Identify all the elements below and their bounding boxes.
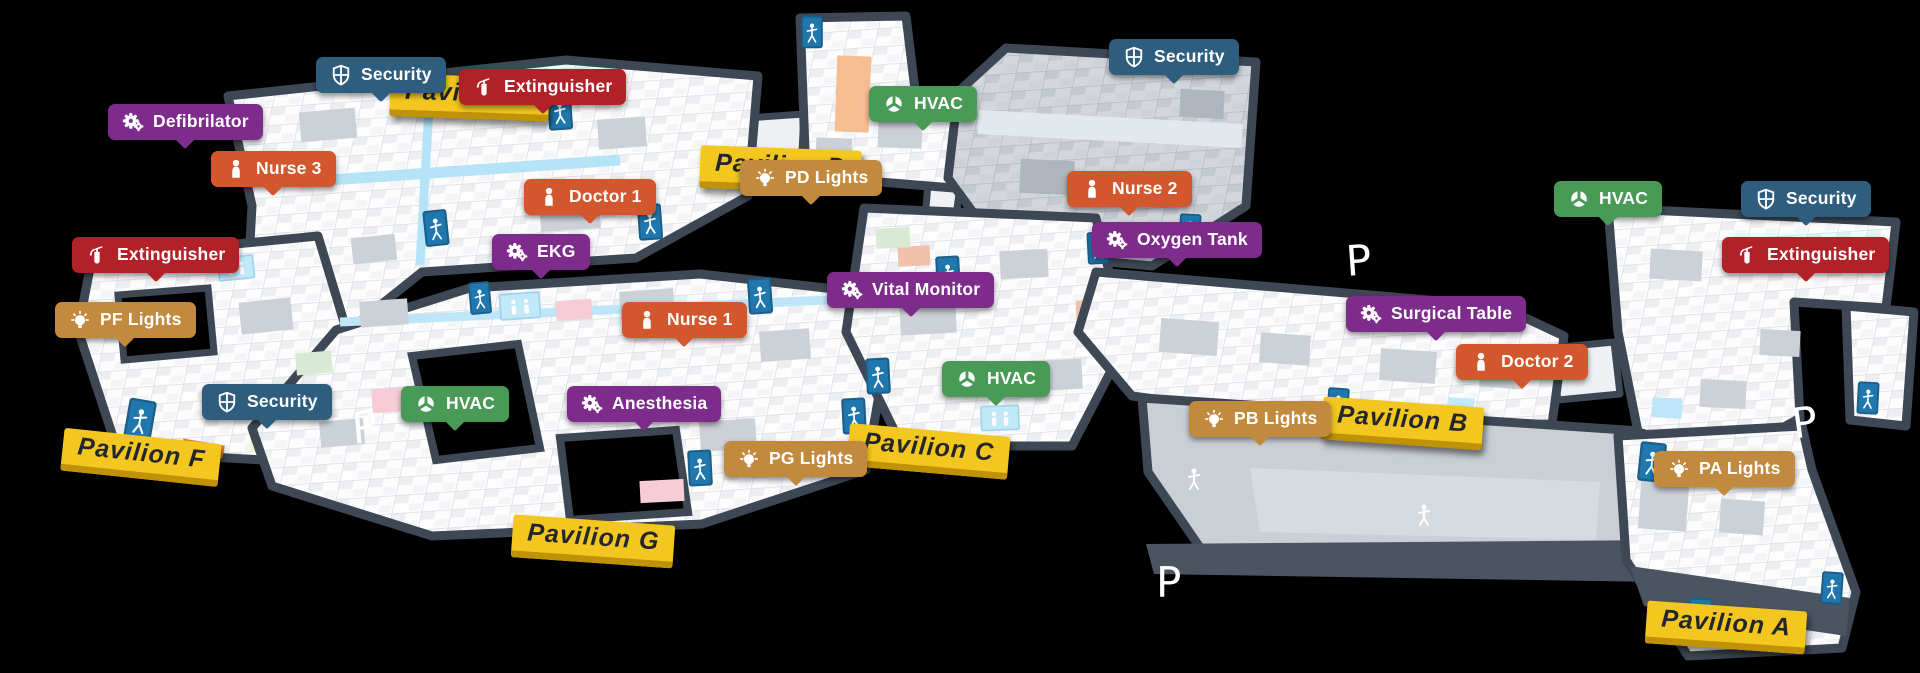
fan-icon — [1568, 188, 1590, 210]
fan-icon — [415, 393, 437, 415]
marker-doctor-2[interactable]: Doctor 2 — [1456, 344, 1588, 380]
banner-label: Pavilion A — [1660, 605, 1792, 642]
person-icon — [538, 186, 560, 208]
marker-nurse-3[interactable]: Nurse 3 — [211, 151, 336, 187]
marker-label: Extinguisher — [504, 78, 612, 96]
marker-pa-lights[interactable]: PA Lights — [1654, 451, 1795, 487]
marker-label: Security — [247, 393, 318, 411]
shield-icon — [1755, 188, 1777, 210]
marker-label: PB Lights — [1234, 410, 1317, 428]
fire-extinguisher-icon — [1736, 244, 1758, 266]
lightbulb-icon — [69, 309, 91, 331]
marker-defibrilator[interactable]: Defibrilator — [108, 104, 263, 140]
marker-oxygen-tank[interactable]: Oxygen Tank — [1092, 222, 1262, 258]
marker-pd-lights[interactable]: PD Lights — [740, 160, 882, 196]
marker-label: HVAC — [914, 95, 963, 113]
person-icon — [1081, 178, 1103, 200]
gears-icon — [122, 111, 144, 133]
marker-nurse-2[interactable]: Nurse 2 — [1067, 171, 1192, 207]
marker-pf-lights[interactable]: PF Lights — [55, 302, 196, 338]
marker-label: HVAC — [1599, 190, 1648, 208]
shield-icon — [216, 391, 238, 413]
marker-label: Security — [361, 66, 432, 84]
marker-hvac-pavilion-g[interactable]: HVAC — [401, 386, 509, 422]
marker-doctor-1[interactable]: Doctor 1 — [524, 179, 656, 215]
gears-icon — [1360, 303, 1382, 325]
marker-label: Nurse 1 — [667, 311, 733, 329]
fan-icon — [883, 93, 905, 115]
lightbulb-icon — [1203, 408, 1225, 430]
lightbulb-icon — [1668, 458, 1690, 480]
marker-security-top-center[interactable]: Security — [1109, 39, 1239, 75]
shield-icon — [1123, 46, 1145, 68]
marker-label: Surgical Table — [1391, 305, 1512, 323]
fire-extinguisher-icon — [86, 244, 108, 266]
gears-icon — [506, 241, 528, 263]
marker-security-pavilion-e[interactable]: Security — [316, 57, 446, 93]
marker-ekg[interactable]: EKG — [492, 234, 590, 270]
marker-surgical-table[interactable]: Surgical Table — [1346, 296, 1526, 332]
marker-label: PD Lights — [785, 169, 868, 187]
gears-icon — [581, 393, 603, 415]
marker-extinguisher-right[interactable]: Extinguisher — [1722, 237, 1889, 273]
banner-label: Pavilion B — [1336, 400, 1469, 437]
marker-label: PA Lights — [1699, 460, 1781, 478]
gears-icon — [841, 279, 863, 301]
fan-icon — [956, 368, 978, 390]
marker-hvac-pavilion-c[interactable]: HVAC — [942, 361, 1050, 397]
fire-extinguisher-icon — [473, 76, 495, 98]
marker-label: Anesthesia — [612, 395, 707, 413]
marker-label: Extinguisher — [1767, 246, 1875, 264]
hospital-map-stage: Pavilion E Pavilion D Pavilion F Pavilio… — [0, 0, 1920, 673]
marker-hvac-top[interactable]: HVAC — [869, 86, 977, 122]
banner-label: Pavilion C — [862, 427, 995, 466]
marker-label: PG Lights — [769, 450, 853, 468]
marker-extinguisher-top[interactable]: Extinguisher — [459, 69, 626, 105]
marker-anesthesia[interactable]: Anesthesia — [567, 386, 721, 422]
person-icon — [1470, 351, 1492, 373]
marker-label: Vital Monitor — [872, 281, 980, 299]
marker-label: HVAC — [446, 395, 495, 413]
marker-label: EKG — [537, 243, 576, 261]
marker-label: Nurse 3 — [256, 160, 322, 178]
marker-label: Doctor 1 — [569, 188, 642, 206]
gears-icon — [1106, 229, 1128, 251]
marker-label: Security — [1786, 190, 1857, 208]
marker-nurse-1[interactable]: Nurse 1 — [622, 302, 747, 338]
marker-security-pavilion-f[interactable]: Security — [202, 384, 332, 420]
lightbulb-icon — [754, 167, 776, 189]
person-icon — [636, 309, 658, 331]
marker-pg-lights[interactable]: PG Lights — [724, 441, 867, 477]
parking-symbol: P — [1345, 239, 1373, 283]
marker-label: Oxygen Tank — [1137, 231, 1248, 249]
marker-vital-monitor[interactable]: Vital Monitor — [827, 272, 994, 308]
marker-label: PF Lights — [100, 311, 182, 329]
marker-hvac-pavilion-a[interactable]: HVAC — [1554, 181, 1662, 217]
marker-label: Extinguisher — [117, 246, 225, 264]
marker-label: HVAC — [987, 370, 1036, 388]
marker-label: Security — [1154, 48, 1225, 66]
person-icon — [225, 158, 247, 180]
shield-icon — [330, 64, 352, 86]
lightbulb-icon — [738, 448, 760, 470]
marker-label: Defibrilator — [153, 113, 249, 131]
marker-pb-lights[interactable]: PB Lights — [1189, 401, 1331, 437]
parking-symbol: P — [1156, 562, 1181, 604]
marker-label: Doctor 2 — [1501, 353, 1574, 371]
marker-extinguisher-left[interactable]: Extinguisher — [72, 237, 239, 273]
marker-security-pavilion-a[interactable]: Security — [1741, 181, 1871, 217]
marker-label: Nurse 2 — [1112, 180, 1178, 198]
banner-label: Pavilion G — [526, 518, 660, 555]
